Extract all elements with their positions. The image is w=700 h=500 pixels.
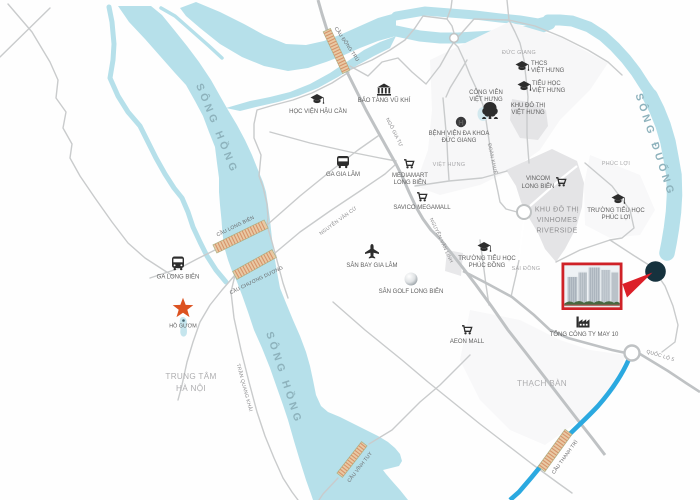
svg-text:SÂN GOLF LONG BIÊN: SÂN GOLF LONG BIÊN bbox=[379, 287, 444, 295]
svg-text:VIỆT HƯNG: VIỆT HƯNG bbox=[511, 108, 545, 116]
svg-text:H: H bbox=[458, 118, 463, 127]
svg-text:GA GIA LÂM: GA GIA LÂM bbox=[326, 171, 360, 178]
svg-text:VINCOM: VINCOM bbox=[526, 176, 550, 182]
svg-text:LONG BIÊN: LONG BIÊN bbox=[522, 182, 555, 190]
svg-text:KHU ĐÔ THỊ: KHU ĐÔ THỊ bbox=[535, 205, 579, 214]
svg-text:HỌC VIỆN HẬU CẦN: HỌC VIỆN HẬU CẦN bbox=[289, 107, 347, 115]
svg-text:BẢO TÀNG VŨ KHÍ: BẢO TÀNG VŨ KHÍ bbox=[358, 97, 411, 104]
svg-text:CÔNG VIÊN: CÔNG VIÊN bbox=[469, 88, 503, 96]
svg-text:VIỆT HƯNG: VIỆT HƯNG bbox=[469, 95, 503, 103]
svg-text:ĐỨC GIANG: ĐỨC GIANG bbox=[502, 49, 536, 56]
svg-text:TỔNG CÔNG TY MAY 10: TỔNG CÔNG TY MAY 10 bbox=[550, 331, 619, 338]
svg-text:MEDIAMART: MEDIAMART bbox=[392, 173, 428, 179]
svg-text:SÂN BAY GIA LÂM: SÂN BAY GIA LÂM bbox=[346, 262, 397, 269]
svg-text:LONG BIÊN: LONG BIÊN bbox=[394, 178, 427, 186]
svg-text:PHÚC ĐỒNG: PHÚC ĐỒNG bbox=[469, 262, 506, 269]
svg-text:THCS: THCS bbox=[531, 61, 547, 67]
svg-text:PHÚC LỢI: PHÚC LỢI bbox=[602, 160, 630, 167]
svg-text:VINHOMES: VINHOMES bbox=[537, 217, 578, 224]
svg-text:KHU ĐÔ THỊ: KHU ĐÔ THỊ bbox=[511, 102, 546, 109]
svg-text:SAVICO MEGAMALL: SAVICO MEGAMALL bbox=[393, 205, 451, 211]
svg-text:RIVERSIDE: RIVERSIDE bbox=[536, 228, 577, 235]
svg-text:TIỂU HỌC: TIỂU HỌC bbox=[532, 80, 561, 87]
svg-text:PHÚC LỢI: PHÚC LỢI bbox=[602, 214, 631, 221]
svg-text:THẠCH BÀN: THẠCH BÀN bbox=[517, 378, 567, 388]
svg-text:TRƯỜNG TIỂU HỌC: TRƯỜNG TIỂU HỌC bbox=[458, 255, 516, 262]
svg-text:GA LONG BIÊN: GA LONG BIÊN bbox=[157, 273, 200, 281]
svg-text:ĐỨC GIANG: ĐỨC GIANG bbox=[442, 137, 477, 144]
svg-text:AEON MALL: AEON MALL bbox=[450, 339, 485, 345]
svg-text:VIỆT HƯNG: VIỆT HƯNG bbox=[532, 86, 566, 94]
svg-text:TRƯỜNG TIỂU HỌC: TRƯỜNG TIỂU HỌC bbox=[587, 207, 645, 214]
svg-text:HÀ NỘI: HÀ NỘI bbox=[176, 383, 206, 393]
svg-text:SÀI ĐỒNG: SÀI ĐỒNG bbox=[512, 265, 541, 272]
svg-text:VIỆT HƯNG: VIỆT HƯNG bbox=[531, 66, 565, 74]
svg-text:HỒ GƯƠM: HỒ GƯƠM bbox=[169, 323, 197, 330]
svg-text:TRUNG TÂM: TRUNG TÂM bbox=[165, 371, 216, 381]
svg-text:VIỆT HƯNG: VIỆT HƯNG bbox=[433, 160, 466, 168]
svg-text:BỆNH VIỆN ĐA KHOA: BỆNH VIỆN ĐA KHOA bbox=[429, 129, 490, 137]
